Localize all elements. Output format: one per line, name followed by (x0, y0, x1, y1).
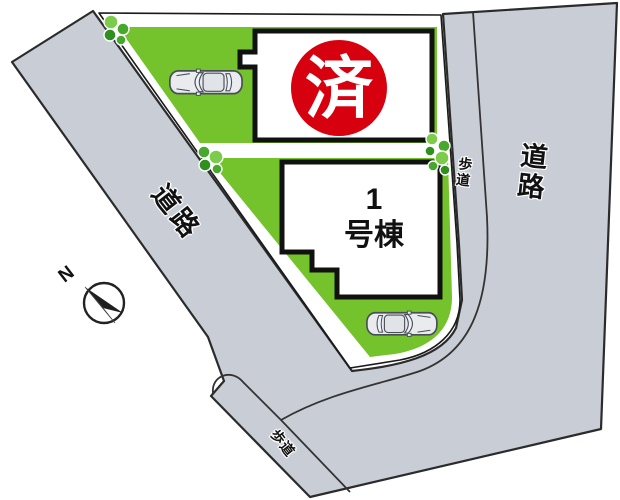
north-arrow-icon (84, 283, 124, 323)
building-1-label: 1 号棟 (294, 182, 454, 254)
site-plan: 道路 道路 歩道 歩道 済 1 号棟 N (0, 0, 620, 500)
building-1-label-suffix: 号棟 (294, 218, 454, 254)
road-right-label: 道路 (516, 141, 552, 204)
building-1-label-number: 1 (294, 182, 454, 218)
car-icon-lot-sold (170, 69, 242, 95)
sold-mark-text: 済 (279, 46, 399, 132)
car-icon-lot-1 (367, 311, 437, 336)
